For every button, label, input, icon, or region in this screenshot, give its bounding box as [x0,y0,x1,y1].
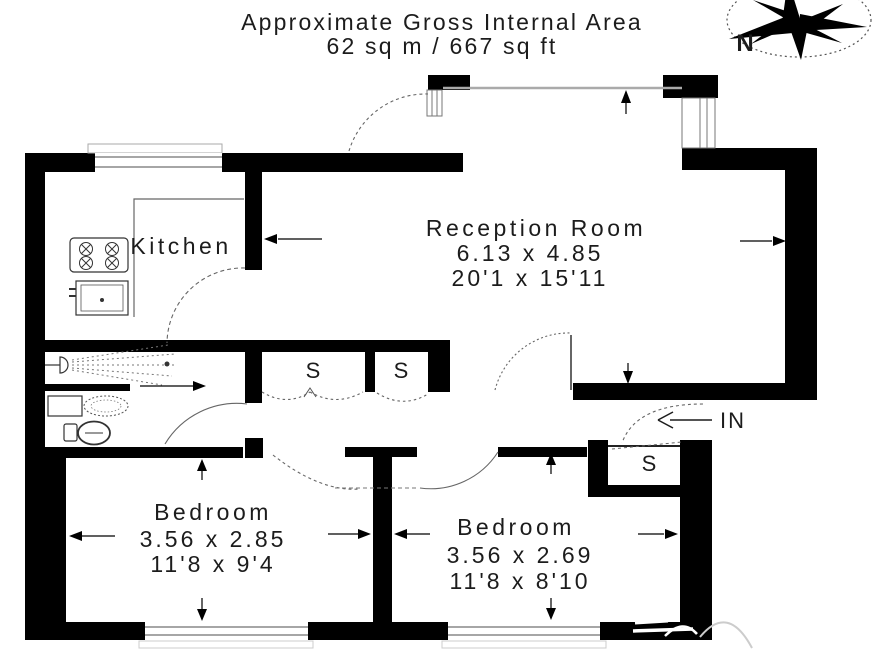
wall-segment [588,485,680,497]
bedroom-right-down-arrow [546,598,556,620]
balcony-door-window [427,88,682,116]
entrance-label: IN [720,408,746,433]
reception-label: Reception Room [426,215,646,241]
closet-mid-door-arc [377,393,428,401]
wall-segment [428,340,450,392]
reception-door-arc [495,333,571,390]
wall-segment [682,148,817,170]
wall-segment [573,383,817,400]
entrance-arrow-icon [658,412,712,428]
drain-dot [165,362,170,367]
stove-icon [70,238,128,272]
basin-icon [48,396,128,416]
balcony-door-arc [349,94,428,151]
bedroom-left-dim-imperial: 11'8 x 9'4 [150,551,275,577]
kitchen-sink-icon [69,281,128,315]
title-block: Approximate Gross Internal Area 62 sq m … [241,9,643,59]
wall-segment [308,622,448,640]
kitchen-window [88,144,222,172]
reception-dim-metric: 6.13 x 4.85 [457,240,604,266]
closet-left-door-arc [310,392,363,400]
wall-segment [373,452,392,622]
bedroom-right-label: Bedroom [457,514,575,540]
storage-label: S [394,358,409,383]
wall-segment [25,622,145,640]
page-title: Approximate Gross Internal Area [241,9,643,35]
bedroom-left-label: Bedroom [154,499,272,525]
reception-down-arrow [623,363,633,384]
bedroom-right-door-arc [420,452,498,489]
wall-segment [680,440,712,640]
wall-segment [785,148,817,400]
wall-segment [498,447,587,457]
floorplan-drawing: Approximate Gross Internal Area 62 sq m … [0,0,882,667]
bedroom-right-dim-metric: 3.56 x 2.69 [447,542,594,568]
bedroom-right-right-arrow [638,529,678,539]
wall-segment [25,447,66,640]
reception-dim-imperial: 20'1 x 15'11 [452,265,609,291]
bedroom-right-left-arrow [394,529,430,539]
wall-segment [25,153,45,447]
bedroom-left-right-arrow [328,529,371,539]
reception-left-arrow [264,234,322,244]
toilet-icon [64,422,110,445]
kitchen-door-arc [167,268,245,343]
storage-label: S [642,451,657,476]
bedroom-left-door-arc [273,455,360,489]
bathroom-door-arc [165,403,247,444]
reception-right-arrow [740,236,786,246]
entrance-door-arc [622,404,703,443]
compass-rose: N [727,0,871,60]
compass-north-label: N [736,30,753,57]
wall-segment [663,75,718,98]
wall-segment [45,384,130,391]
bathroom-right-arrow [140,381,206,391]
kitchen-label: Kitchen [130,233,231,259]
wall-segment [245,438,263,458]
wall-segment [25,340,450,352]
closet-left-door-arc [262,392,310,400]
bedroom-right-dim-imperial: 11'8 x 8'10 [449,568,590,594]
bedroom-left-dim-metric: 3.56 x 2.85 [140,526,287,552]
bedroom-right-window [442,627,606,648]
bedroom-left-left-arrow [69,531,115,541]
bedroom-left-up-arrow [197,459,207,480]
bedroom-left-window [139,627,313,648]
wall-segment [245,153,262,270]
wall-segment [45,447,243,458]
area-subtitle: 62 sq m / 667 sq ft [326,33,557,59]
reception-side-window [682,98,715,148]
wall-segment [365,340,375,392]
reception-up-arrow [621,90,631,114]
bedroom-left-down-arrow [197,598,207,621]
floorplan-page: Approximate Gross Internal Area 62 sq m … [0,0,882,667]
storage-label: S [306,358,321,383]
